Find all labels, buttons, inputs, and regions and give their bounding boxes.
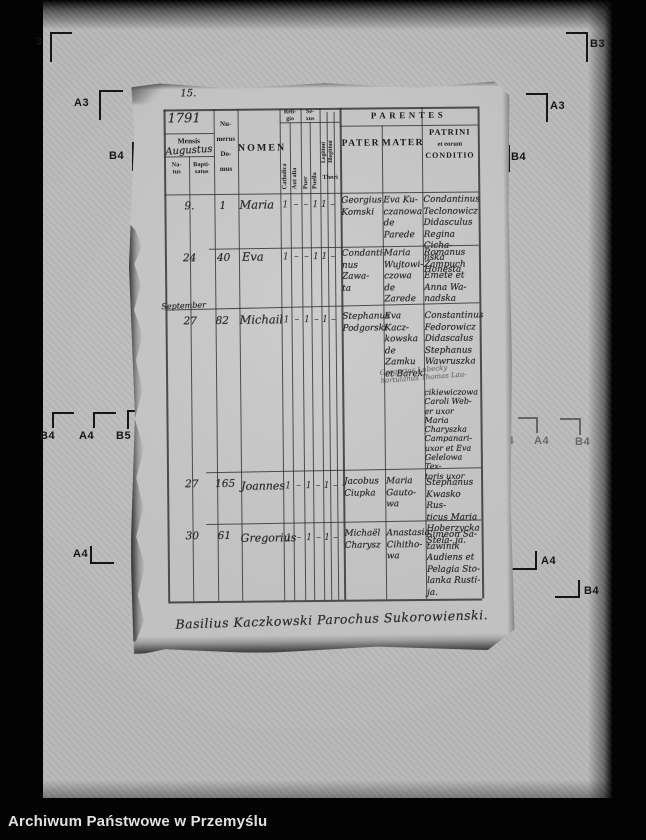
fiducial-bracket-icon [93,412,116,428]
fiducial-bracket-icon [518,417,538,433]
header-patrini-conditio: CONDITIO [422,150,478,160]
tally-mark: – [291,251,301,262]
header-illegitimi: Illegitimi [328,113,334,163]
fiducial-bracket-icon [526,93,548,122]
row-natus: 24 [183,252,196,264]
row-domus: 165 [215,478,235,490]
table-line-v [214,109,220,601]
tally-mark: 1 [280,199,290,210]
row-natus: 27 [185,478,198,490]
header-natus: Na- tus [165,161,188,176]
row-domus: 1 [219,200,226,212]
row-patrini: Romanus Zampuch Emete et Anna Wa- nadska [424,247,480,305]
row-mater: Maria Gauto- wa [386,476,425,511]
fiducial-bracket-icon [50,32,72,62]
fiducial-label: A4 [534,435,549,447]
document-page: 15. 1791 Mensis Augustus Na- tus [125,80,514,656]
row-natus: 27 [183,315,196,327]
tally-mark: 1 [281,314,291,325]
header-puella: Puella [311,127,319,189]
fiducial-bracket-icon [555,580,580,598]
fiducial-label: 3 [36,36,43,48]
table-line-v [164,109,170,601]
header-sexus: Se- xus [301,109,320,122]
header-patrini: PATRINI [422,127,478,137]
fiducial-bracket-icon [512,551,537,570]
row-nomen: Michail [239,312,283,326]
fiducial-label: A4 [73,548,88,560]
tally-mark: – [328,314,338,325]
header-pater: PATER [340,138,382,149]
tally-mark: – [327,199,337,210]
table-line-h [164,133,214,134]
row-pater: Condanti- nus Zawa- ta [342,248,383,295]
row-patrini: Simeon Sa- tawinik Audiens et Pelagia St… [427,529,483,599]
table-line-v [238,109,244,601]
header-nomen: NOMEN [238,142,280,154]
tally-mark: 1 [283,480,293,491]
fiducial-label: B4 [584,585,599,597]
page-number: 15. [180,88,196,99]
tally-mark: – [330,480,340,491]
fiducial-label: B4 [511,151,526,163]
tally-mark: 1 [281,251,291,262]
row-natus: 9. [184,200,194,212]
row-domus: 82 [215,315,228,327]
fiducial-label: B5 [116,430,131,442]
table-line-v [334,112,340,600]
header-baptisatus: Bapti- satus [190,161,213,176]
row-nomen: Eva [242,250,264,264]
table-line-v [327,112,333,600]
fiducial-label: A3 [550,100,565,112]
row-patrini-continued: cikiewiczowa Caroli Web- er uxor Maria C… [424,387,481,481]
row-mater: Eva Ku- czanowa de Parede [383,195,422,242]
fiducial-bracket-icon [52,412,74,428]
row-patrini: Constantinus Fedorowicz Didascalus Steph… [424,310,480,368]
header-patrini-sub: et eorum [422,140,478,148]
row-pater: Georgius Komski [341,195,382,219]
table-line-v [320,108,326,600]
header-numerus-domus: Nu- merus Do- mus [214,117,239,177]
header-religio: Reli- gio [280,109,301,122]
tally-mark: – [292,314,302,325]
priest-signature: Basilius Kaczkowski Parochus Sukorowiens… [175,607,490,632]
row-mater: Anastasia Cihitho- wa [387,528,426,563]
row-natus: 30 [186,530,199,542]
header-catholica: Catholica [281,127,289,189]
row-nomen: Joannes [241,479,285,492]
fiducial-label: A4 [79,430,94,442]
row-pater: Michaël Charysz [345,528,386,552]
row-domus: 61 [218,530,231,542]
tally-mark: – [294,480,304,491]
header-legitimi: Legitimi [321,113,327,163]
header-mater: MATER [382,138,422,149]
scan-viewer: 3 B3 A3 A3 B4 B4 B4 A4 B5 B4 A4 B4 A4 A4… [0,0,646,840]
tally-mark: – [291,199,301,210]
year-cell: 1791 [168,111,201,126]
row-pater: Jacobus Ciupka [344,476,385,500]
tally-mark: 1 [284,532,294,543]
row-mater: Maria Wujtowi- czowa de Zarede [384,248,424,306]
header-puer: Puer [302,127,310,189]
fiducial-label: B3 [590,38,605,50]
header-aut-alia: Aut alia [291,127,299,189]
tally-mark: – [294,532,304,543]
fiducial-label: A4 [541,555,556,567]
table-line-v [340,108,346,600]
row-nomen: Maria [239,197,274,211]
tally-mark: – [331,532,341,543]
fiducial-label: B4 [40,430,55,442]
row-pater: Stephanus Podgorski [342,311,383,335]
header-thori: Thori [320,174,340,181]
header-parentes: PARENTES [340,109,478,121]
fiducial-label: B4 [109,150,124,162]
fiducial-label: A3 [74,97,89,109]
tally-mark: – [328,251,338,262]
fiducial-bracket-icon [90,546,114,564]
fiducial-bracket-icon [566,32,588,62]
fiducial-bracket-icon [99,90,123,120]
archive-caption: Archiwum Państwowe w Przemyślu [8,813,267,830]
fiducial-label: B4 [575,436,590,448]
row-domus: 40 [217,252,230,264]
fiducial-bracket-icon [560,418,581,435]
